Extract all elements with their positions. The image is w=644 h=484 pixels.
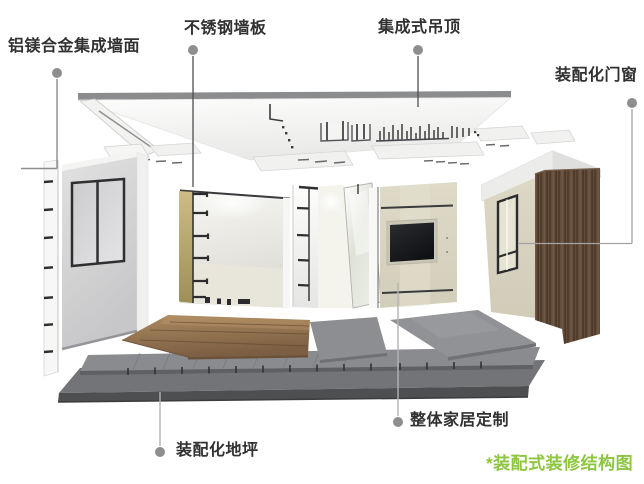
callout-dot-aluminum-wall	[52, 68, 62, 78]
door-window-module	[481, 151, 601, 345]
tv-screen	[390, 223, 434, 263]
room-illustration	[0, 0, 644, 484]
wood-door-panel	[535, 169, 600, 345]
diagram-caption: *装配式装修结构图	[486, 449, 633, 474]
callout-dot-door-window	[627, 98, 637, 108]
stainless-wall-module	[179, 187, 290, 308]
callout-label-floor: 装配化地坪	[176, 442, 259, 460]
callout-label-stainless-panel: 不锈钢墙板	[184, 20, 267, 38]
callout-label-furniture: 整体家居定制	[410, 412, 509, 430]
callout-dot-furniture	[393, 417, 403, 427]
callout-dot-floor	[155, 447, 165, 457]
callout-label-ceiling: 集成式吊顶	[378, 19, 461, 37]
tile-panel-small	[310, 317, 387, 360]
callout-dot-ceiling	[413, 45, 423, 55]
wall-side-return	[137, 152, 148, 331]
callout-label-door-window: 装配化门窗	[555, 67, 638, 85]
exploded-room-diagram: 铝镁合金集成墙面 不锈钢墙板 集成式吊顶 装配化门窗 装配化地坪 整体家居定制 …	[0, 0, 644, 484]
leader-aluminum-wall	[21, 79, 57, 169]
callout-dot-stainless-panel	[188, 45, 198, 55]
yellow-keel-strip	[179, 191, 193, 303]
ceiling-assembly	[78, 91, 575, 171]
stud-pillar	[293, 185, 318, 308]
callout-label-aluminum-wall: 铝镁合金集成墙面	[8, 38, 140, 56]
tv-wall-module	[369, 182, 457, 308]
